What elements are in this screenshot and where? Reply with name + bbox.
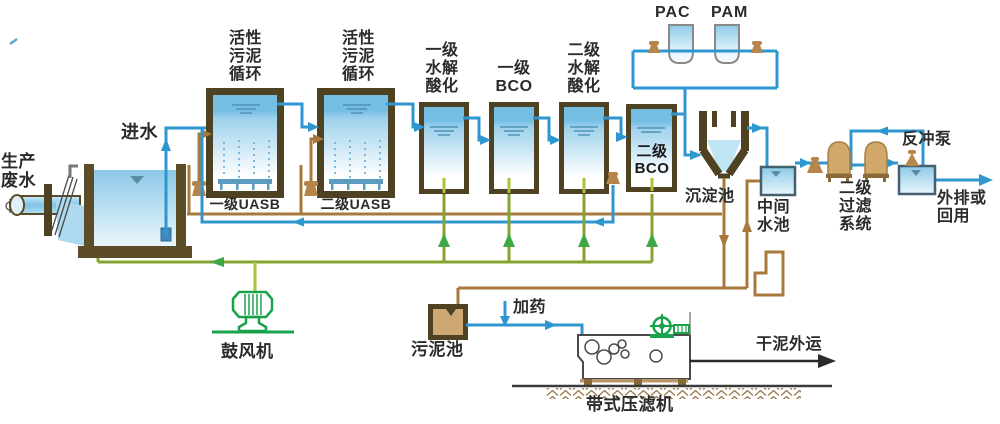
label-hydrolysis-2: 二级 水解 酸化: [566, 42, 602, 96]
sludge-pool: [428, 304, 468, 340]
label-inlet: 进水: [121, 122, 158, 142]
pac-beaker: [669, 25, 693, 63]
label-bco-1: 一级 BCO: [489, 60, 539, 96]
label-sludge-cycle-1: 活性 污泥 循环: [229, 30, 262, 84]
label-hydrolysis-1: 一级 水解 酸化: [424, 42, 460, 96]
belt-filter-press: [578, 312, 690, 385]
equalization-tank: [78, 164, 192, 258]
label-backwash-pump: 反冲泵: [902, 131, 952, 149]
label-dry-sludge: 干泥外运: [756, 336, 822, 354]
label-sludge-cycle-2: 活性 污泥 循环: [342, 30, 375, 84]
intermediate-tank: [761, 167, 795, 195]
tank-uasb-2: [317, 88, 395, 198]
label-outfall: 外排或 回用: [937, 190, 987, 226]
filter-vessel-1: [826, 142, 852, 182]
label-sludge-pool: 污泥池: [411, 340, 464, 359]
process-flow-diagram: 生产 废水 进水 活性 污泥 循环 活性 污泥 循环 一级UASB 二级UASB…: [0, 0, 1000, 424]
label-intermediate-tank: 中间 水池: [757, 199, 790, 235]
label-uasb-2: 二级UASB: [317, 197, 395, 213]
sedimentation-tank: [699, 111, 749, 176]
label-bco-2: 二级 BCO: [631, 144, 673, 178]
label-filter-system: 二级 过滤 系统: [839, 180, 872, 234]
label-uasb-1: 一级UASB: [206, 197, 284, 213]
filter-vessel-2: [863, 142, 889, 182]
label-sedimentation: 沉淀池: [685, 188, 735, 206]
label-pam: PAM: [711, 4, 748, 22]
blower-icon: [212, 292, 294, 332]
label-blower: 鼓风机: [221, 342, 274, 361]
label-dosing: 加药: [513, 299, 546, 317]
backwash-pump: [905, 150, 919, 166]
corner-tick-mark: [10, 39, 17, 44]
label-belt-press: 带式压滤机: [586, 395, 674, 414]
label-production-wastewater: 生产 废水: [1, 152, 36, 190]
clear-water-tank: [899, 166, 935, 194]
bar-screen: [44, 166, 84, 246]
label-pac: PAC: [655, 4, 691, 22]
tank-uasb-1: [206, 88, 284, 198]
dry-sludge-arrow: [690, 354, 836, 368]
tank-bco-1: [489, 102, 539, 194]
pam-beaker: [715, 25, 739, 63]
